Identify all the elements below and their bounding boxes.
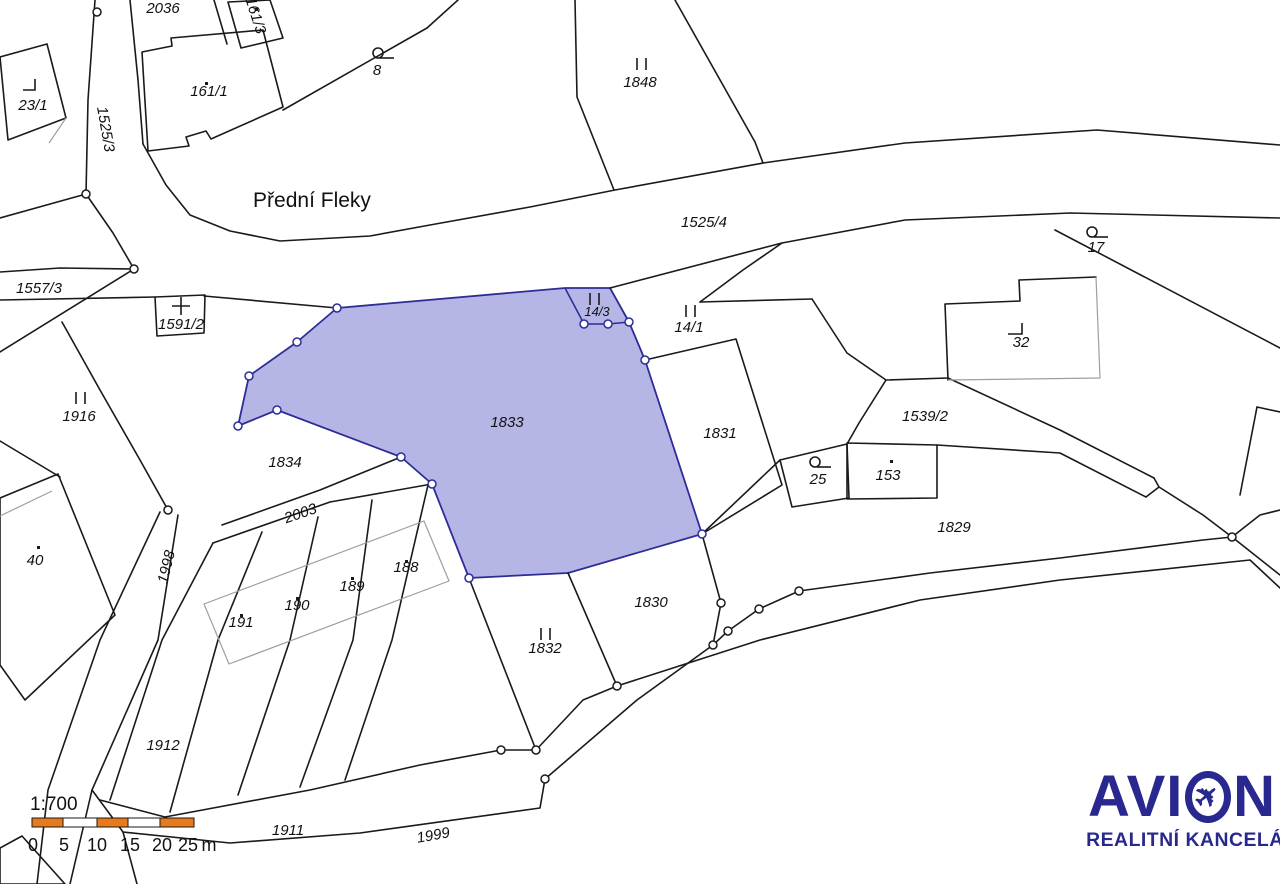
parcel-label: 14/3 — [584, 304, 610, 319]
parcel-label: 161/1 — [190, 83, 228, 100]
map-canvas: Přední Fleky 2036 161/3 23/1 1525/3 161/… — [0, 0, 1280, 884]
parcel-label: 1832 — [528, 640, 562, 657]
parcel-label: 1912 — [146, 737, 180, 754]
airplane-circle-icon: ✈ — [1185, 771, 1231, 823]
corner-icon — [23, 79, 35, 90]
scale-ratio-label: 1:700 — [30, 794, 78, 815]
street-name-label: Přední Fleky — [253, 189, 371, 212]
cross-icon — [172, 297, 190, 315]
parcel-label: 1911 — [272, 822, 304, 839]
parcel-label: 1525/3 — [93, 105, 118, 154]
point-symbol-icon — [1087, 227, 1108, 237]
parcel-label: 1916 — [62, 408, 96, 425]
meadow-icon — [686, 305, 695, 317]
avion-logo-subtitle: REALITNÍ KANCELÁŘ — [1086, 830, 1278, 852]
parcel-label: 8 — [373, 62, 382, 79]
scale-unit-label: m — [202, 835, 217, 855]
parcel-label: 1591/2 — [158, 316, 205, 333]
parcel-label: 1848 — [623, 74, 657, 91]
highlighted-parcel-label: 1833 — [490, 414, 524, 431]
parcel-label: 1539/2 — [902, 408, 949, 425]
corner-icon — [1008, 323, 1022, 334]
map-scale: 1:700 0 5 10 15 20 25 m — [28, 794, 217, 855]
avion-logo: AVI ✈ N REALITNÍ KANCELÁŘ — [1088, 768, 1276, 852]
scale-tick-label: 15 — [120, 835, 140, 855]
scale-bar — [32, 818, 194, 827]
highlighted-parcel-1833 — [238, 288, 702, 578]
parcel-label: 191 — [228, 614, 253, 631]
avion-logo-wordmark: AVI ✈ N — [1088, 768, 1276, 826]
parcel-label: 1525/4 — [681, 214, 727, 231]
scale-tick-label: 20 — [152, 835, 172, 855]
logo-text-prefix: AVI — [1088, 768, 1183, 826]
parcel-label: 1999 — [415, 824, 451, 847]
parcel-label: 1830 — [634, 594, 668, 611]
parcel-label: 1834 — [268, 454, 301, 471]
parcel-label: 153 — [875, 467, 901, 484]
cadastral-map: Přední Fleky 2036 161/3 23/1 1525/3 161/… — [0, 0, 1280, 884]
point-symbol-icon — [810, 457, 831, 467]
scale-tick-label: 0 — [28, 835, 38, 855]
logo-text-suffix: N — [1233, 768, 1276, 826]
parcel-label: 17 — [1088, 239, 1105, 256]
parcel-label: 32 — [1013, 334, 1030, 351]
parcel-label: 1831 — [703, 425, 736, 442]
meadow-icon — [76, 392, 85, 404]
scale-tick-label: 5 — [59, 835, 69, 855]
parcel-label: 190 — [284, 597, 310, 614]
parcel-label: 14/1 — [674, 319, 703, 336]
parcel-label: 1557/3 — [16, 280, 63, 297]
meadow-icon — [541, 628, 550, 640]
parcel-label: 1998 — [154, 548, 179, 585]
scale-tick-label: 10 — [87, 835, 107, 855]
scale-tick-label: 25 — [178, 835, 198, 855]
meadow-icon — [637, 58, 646, 70]
airplane-icon: ✈ — [1189, 777, 1228, 817]
parcel-label: 189 — [339, 578, 365, 595]
parcel-label: 2003 — [281, 500, 320, 527]
parcel-label: 23/1 — [17, 97, 47, 114]
parcel-label: 25 — [809, 471, 827, 488]
parcel-label: 40 — [27, 552, 44, 569]
parcel-label: 188 — [393, 559, 419, 576]
parcel-label: 2036 — [145, 0, 180, 17]
parcel-label: 1829 — [937, 519, 971, 536]
